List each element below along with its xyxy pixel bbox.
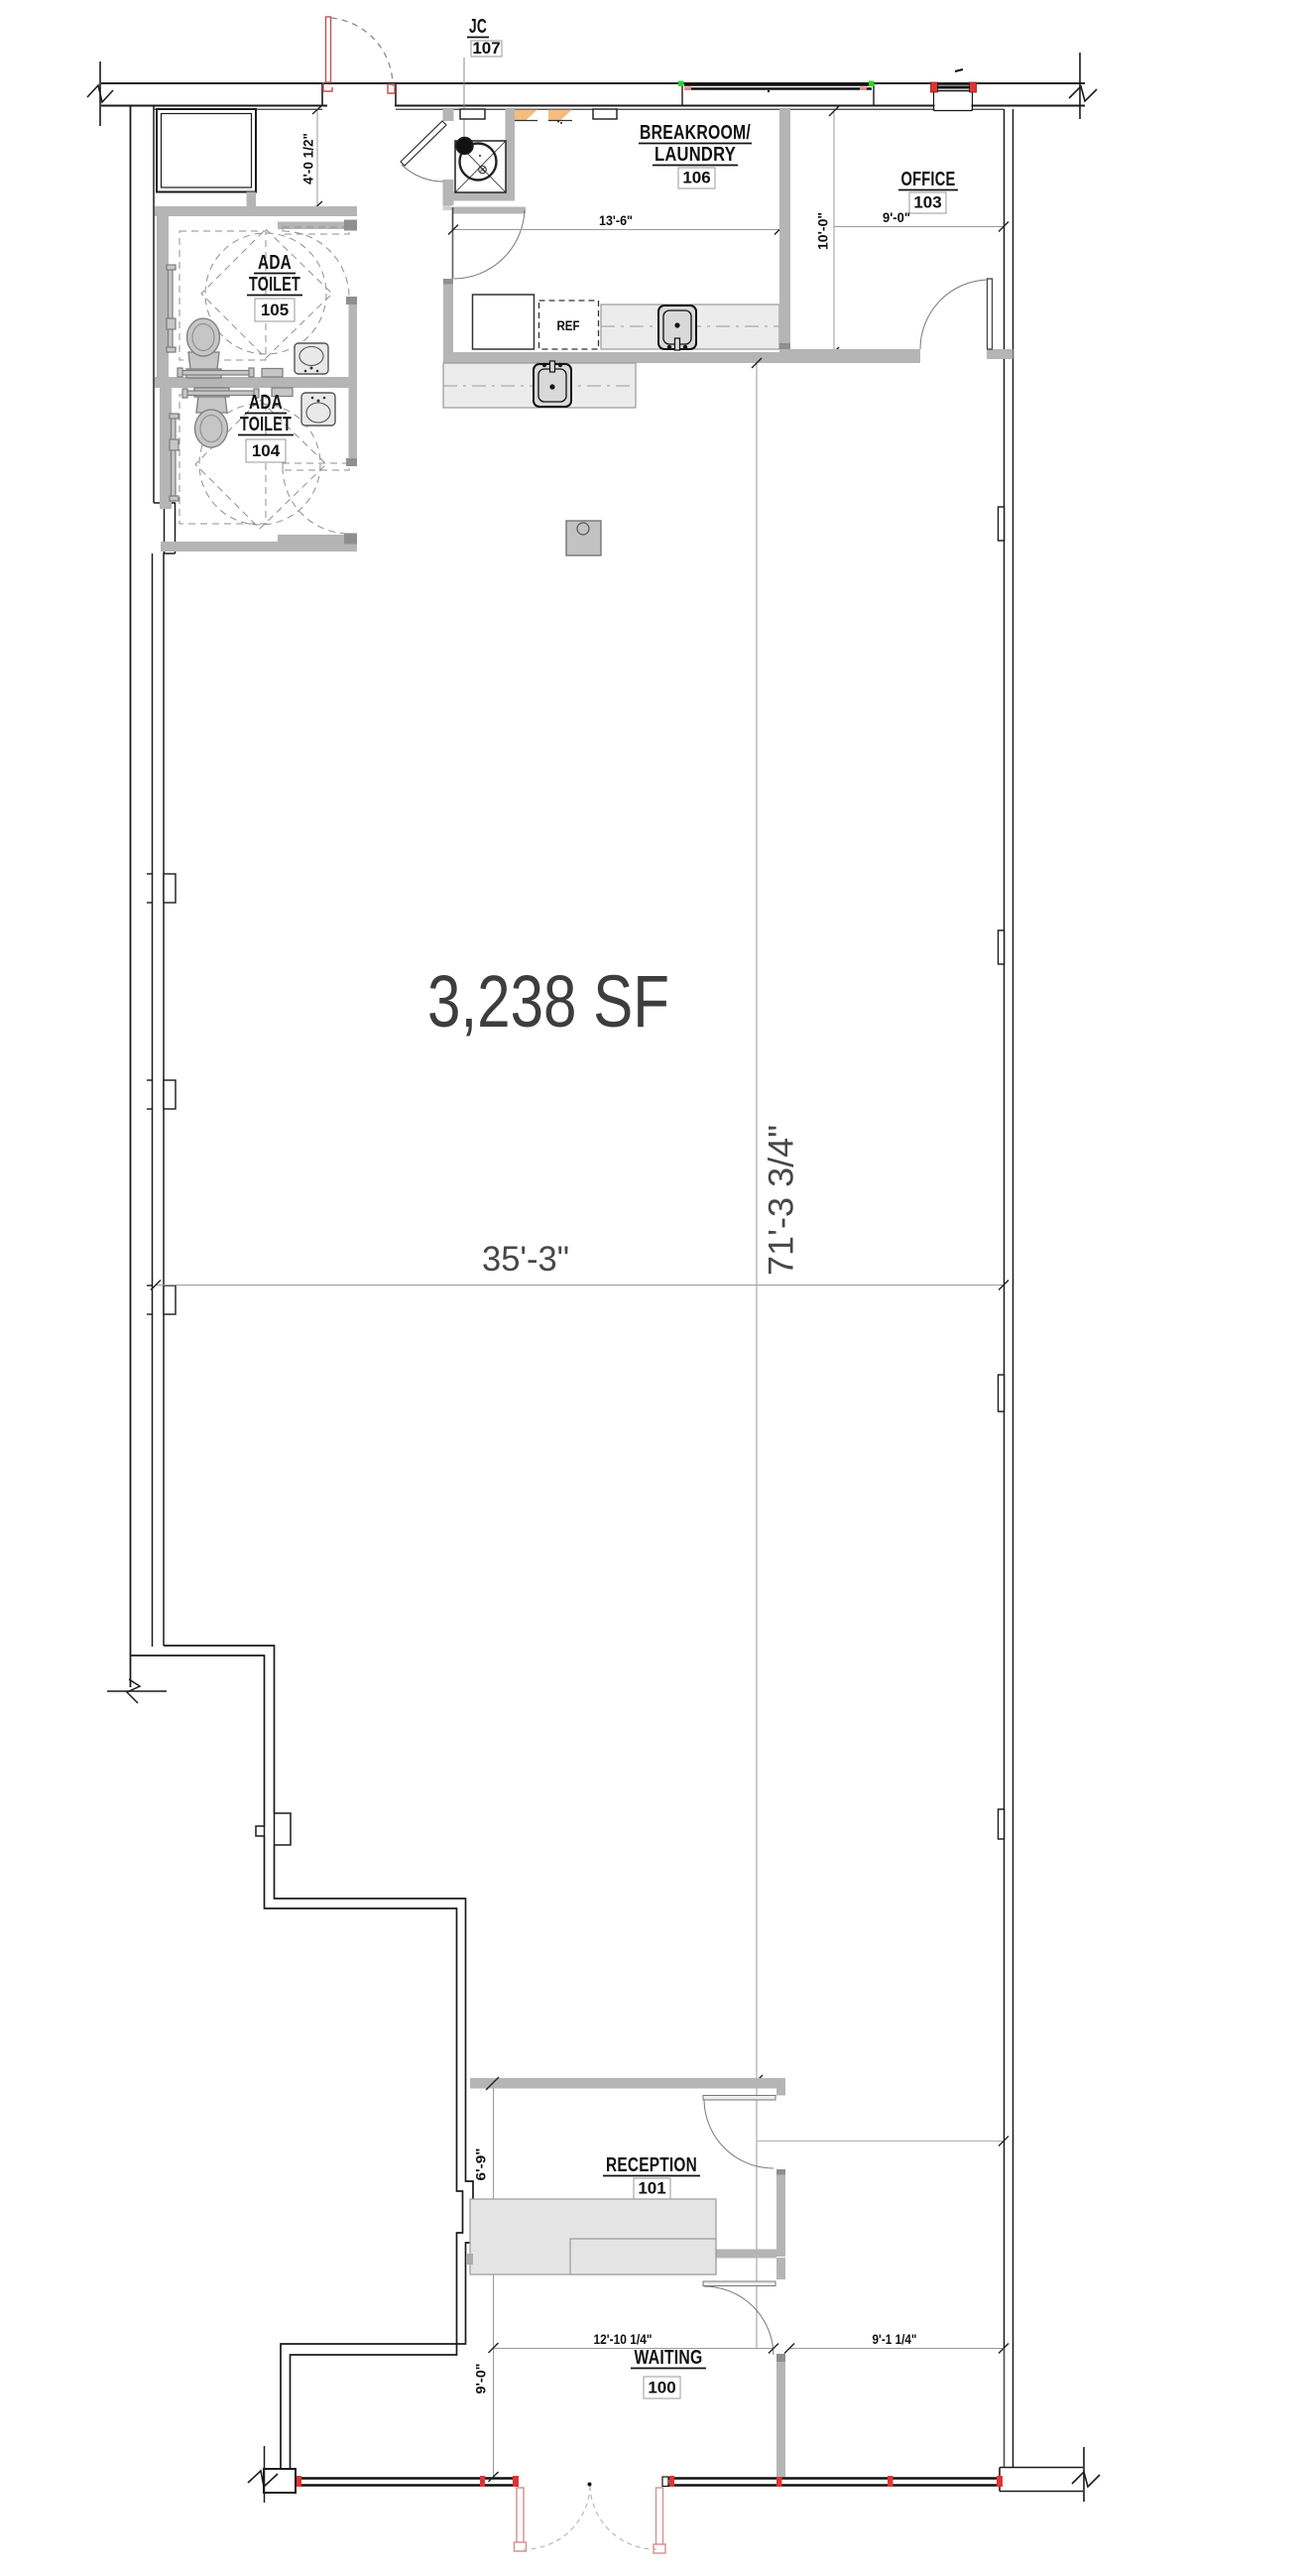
svg-text:71'-3 3/4": 71'-3 3/4": [762, 1125, 800, 1276]
svg-text:RECEPTION: RECEPTION: [606, 2154, 697, 2176]
svg-text:106: 106: [682, 169, 710, 187]
svg-text:10'-0": 10'-0": [816, 212, 831, 250]
svg-text:101: 101: [638, 2179, 665, 2198]
svg-text:13'-6": 13'-6": [599, 213, 633, 228]
svg-text:107: 107: [472, 39, 500, 58]
svg-text:35'-3": 35'-3": [482, 1240, 569, 1279]
svg-text:OFFICE: OFFICE: [901, 169, 956, 190]
svg-text:ADA: ADA: [258, 252, 292, 274]
svg-text:12'-10 1/4": 12'-10 1/4": [594, 2332, 653, 2347]
svg-text:105: 105: [261, 301, 289, 319]
svg-text:6'-9": 6'-9": [474, 2148, 489, 2181]
svg-text:TOILET: TOILET: [249, 274, 300, 296]
svg-text:103: 103: [913, 193, 941, 212]
svg-text:100: 100: [648, 2379, 675, 2397]
svg-text:REF: REF: [557, 318, 580, 333]
svg-text:4'-0 1/2": 4'-0 1/2": [301, 133, 316, 184]
svg-text:WAITING: WAITING: [635, 2347, 703, 2369]
svg-text:TOILET: TOILET: [240, 414, 292, 435]
svg-text:9'-0": 9'-0": [474, 2364, 489, 2394]
svg-text:9'-0": 9'-0": [883, 210, 910, 225]
svg-text:JC: JC: [469, 16, 487, 38]
svg-text:3,238 SF: 3,238 SF: [427, 960, 669, 1043]
svg-text:LAUNDRY: LAUNDRY: [654, 144, 736, 166]
svg-text:104: 104: [252, 441, 281, 460]
svg-text:ADA: ADA: [249, 392, 283, 414]
svg-text:BREAKROOM/: BREAKROOM/: [640, 122, 751, 144]
svg-text:9'-1 1/4": 9'-1 1/4": [873, 2332, 917, 2347]
